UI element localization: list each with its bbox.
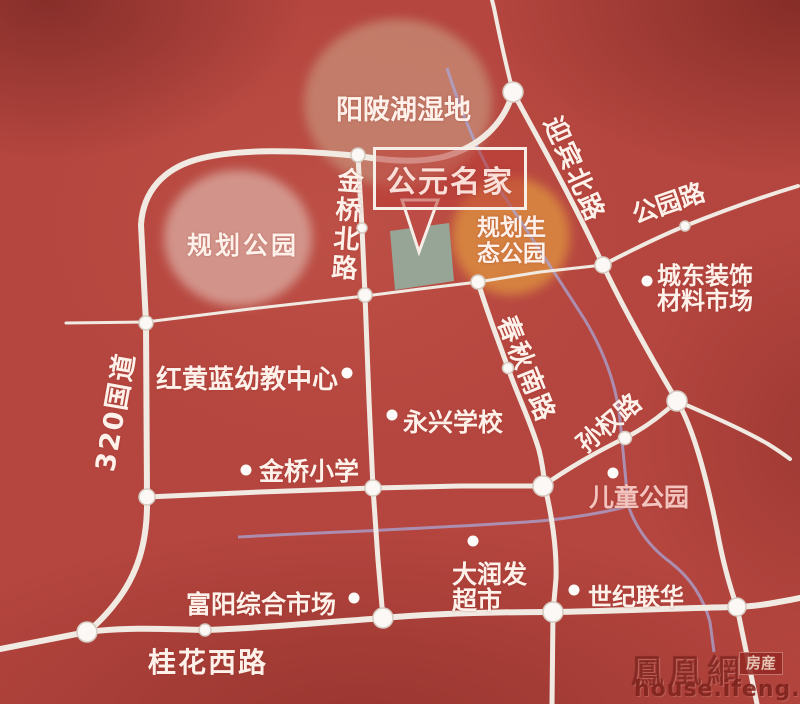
road-east-branch [677,401,790,459]
location-map: 公元名家 阳陂湖湿地 规划公园 规划生 态公园 金桥北路 320国道 迎宾北路 … [0,0,800,704]
landmark-fuyang-market: 富阳综合市场 [186,585,336,621]
landmark-darunfa-line2: 超市 [452,581,502,617]
landmark-jinqiao-primary: 金桥小学 [259,452,359,488]
road-label-guihua-west: 桂花西路 [148,641,268,681]
project-callout: 公元名家 [373,147,527,210]
landmark-century-lianhua: 世纪联华 [588,577,684,612]
wetland-label: 阳陂湖湿地 [336,88,471,127]
landmark-kindergarten: 红黄蓝幼教中心 [156,359,338,396]
landmark-chengdong-line2: 材料市场 [657,281,753,316]
landmark-yongxing-school: 永兴学校 [403,403,503,439]
ifeng-house-badge: 房産 [739,652,783,675]
project-name: 公元名家 [386,157,514,201]
landmark-children-park: 儿童公园 [589,478,689,514]
eco-park-label-line2: 态公园 [477,234,546,268]
ifeng-url: house.ifeng.com [634,677,800,702]
planned-park-label: 规划公园 [187,226,299,262]
road-top-stub [492,0,513,92]
